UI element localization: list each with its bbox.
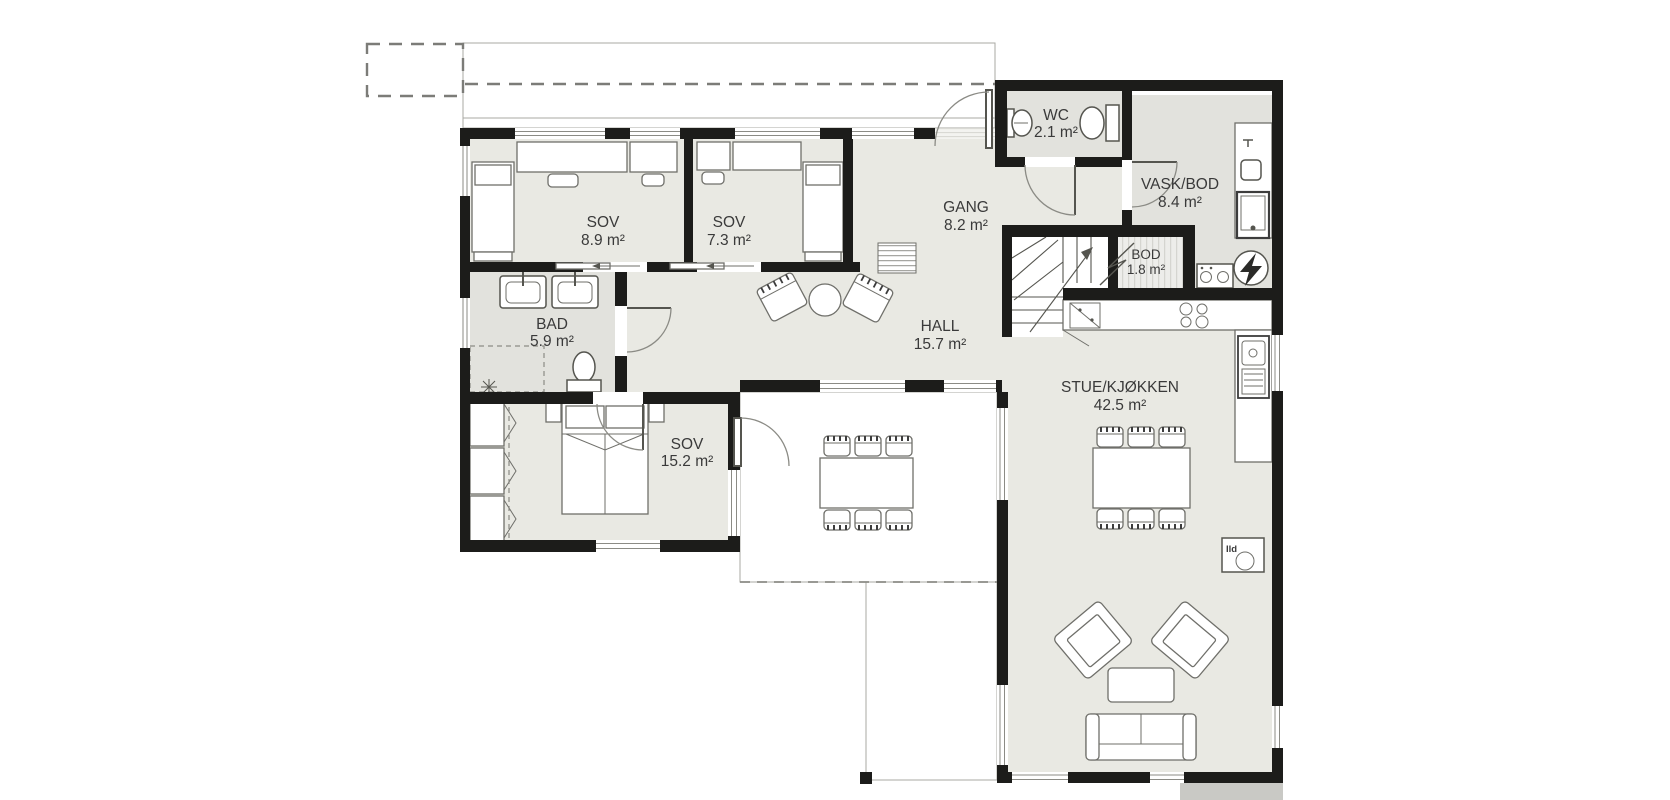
window <box>460 146 470 196</box>
dining-table <box>1093 448 1190 508</box>
laundry-tub <box>1237 192 1269 238</box>
wardrobe <box>470 400 504 446</box>
ground-shadow <box>1180 783 1283 800</box>
window <box>852 128 914 139</box>
kitchen-counter <box>1063 300 1272 330</box>
label-sov3-area: 15.2 m² <box>661 453 714 470</box>
desk-chair <box>548 174 578 187</box>
label-wc-area: 2.1 m² <box>1034 124 1078 141</box>
wall-bod-east <box>1183 225 1195 290</box>
wall-east-exterior <box>1272 80 1283 783</box>
fireplace-label: Ild <box>1226 544 1237 555</box>
label-bod-name: BOD <box>1131 247 1161 262</box>
pillow <box>806 165 840 185</box>
hall-round-table <box>809 284 841 316</box>
window <box>1272 706 1283 748</box>
roof-hatch-band <box>463 43 995 128</box>
deck-post <box>860 772 872 784</box>
label-bod-area: 1.8 m² <box>1127 262 1166 277</box>
dining-table <box>820 458 913 508</box>
dresser <box>630 142 677 172</box>
label-hall-name: HALL <box>921 318 960 335</box>
wall-bedroom-south <box>460 262 860 272</box>
wall-sov2-east <box>843 139 853 272</box>
label-stue-area: 42.5 m² <box>1094 397 1147 414</box>
label-sov1-name: SOV <box>587 214 620 231</box>
label-vask-name: VASK/BOD <box>1141 176 1219 193</box>
pillow <box>606 406 644 428</box>
wall-stairs-west <box>1002 225 1012 337</box>
label-hall-area: 15.7 m² <box>914 336 967 353</box>
wall-kitchen-north <box>1063 288 1272 300</box>
label-stue-name: STUE/KJØKKEN <box>1061 379 1179 396</box>
label-wc-name: WC <box>1043 107 1069 124</box>
window <box>997 685 1008 765</box>
window <box>1150 772 1184 783</box>
desk-chair <box>702 172 724 184</box>
window <box>820 380 905 392</box>
terrace-dining-set <box>820 436 913 530</box>
label-sov3-name: SOV <box>671 436 704 453</box>
open-deck <box>866 582 997 780</box>
label-gang-name: GANG <box>943 199 989 216</box>
dresser <box>733 142 801 170</box>
window <box>515 128 605 139</box>
label-bad-area: 5.9 m² <box>530 333 574 350</box>
label-bad-name: BAD <box>536 316 568 333</box>
desk-chair <box>642 174 664 186</box>
floorplan-canvas: Ild <box>0 0 1670 800</box>
coffee-table <box>1108 668 1174 702</box>
pillow <box>475 165 511 185</box>
wardrobe <box>470 448 504 494</box>
stue-dining-set <box>1093 427 1190 529</box>
label-sov2-area: 7.3 m² <box>707 232 751 249</box>
label-sov2-name: SOV <box>713 214 746 231</box>
window <box>460 298 470 348</box>
sofa-armrest <box>1183 714 1196 760</box>
label-gang-area: 8.2 m² <box>944 217 988 234</box>
terrace-door <box>734 418 789 466</box>
kitchen-sink <box>1238 336 1269 398</box>
window <box>630 128 680 139</box>
window <box>728 470 740 536</box>
nightstand <box>474 252 512 261</box>
room-floor-corridor <box>1002 162 1122 225</box>
toilet-bowl <box>573 352 595 382</box>
gang-closet <box>878 243 916 273</box>
wall-sov-divider <box>684 139 693 262</box>
window <box>944 380 996 392</box>
wall-stairs-north <box>1002 225 1195 237</box>
desk <box>697 142 730 170</box>
label-sov1-area: 8.9 m² <box>581 232 625 249</box>
roof-dashed-outline <box>367 44 463 96</box>
fireplace: Ild <box>1222 538 1264 572</box>
window <box>596 540 660 552</box>
floorplan-svg: Ild <box>0 0 1670 800</box>
desk <box>517 142 627 172</box>
toilet-bowl <box>1080 107 1104 139</box>
window <box>1272 335 1283 391</box>
nightstand <box>649 402 664 422</box>
laundry-sink <box>1241 160 1261 180</box>
toilet-tank <box>1106 105 1119 141</box>
wall-north-wc-wing <box>995 80 1283 91</box>
window <box>1012 772 1068 783</box>
nightstand <box>546 402 561 422</box>
toilet-tank <box>567 380 601 392</box>
window <box>735 128 820 139</box>
wall-wc-west <box>995 80 1007 167</box>
window <box>997 408 1008 500</box>
wardrobe <box>470 496 504 542</box>
nightstand <box>805 252 841 261</box>
sofa-armrest <box>1086 714 1099 760</box>
label-vask-area: 8.4 m² <box>1158 194 1202 211</box>
